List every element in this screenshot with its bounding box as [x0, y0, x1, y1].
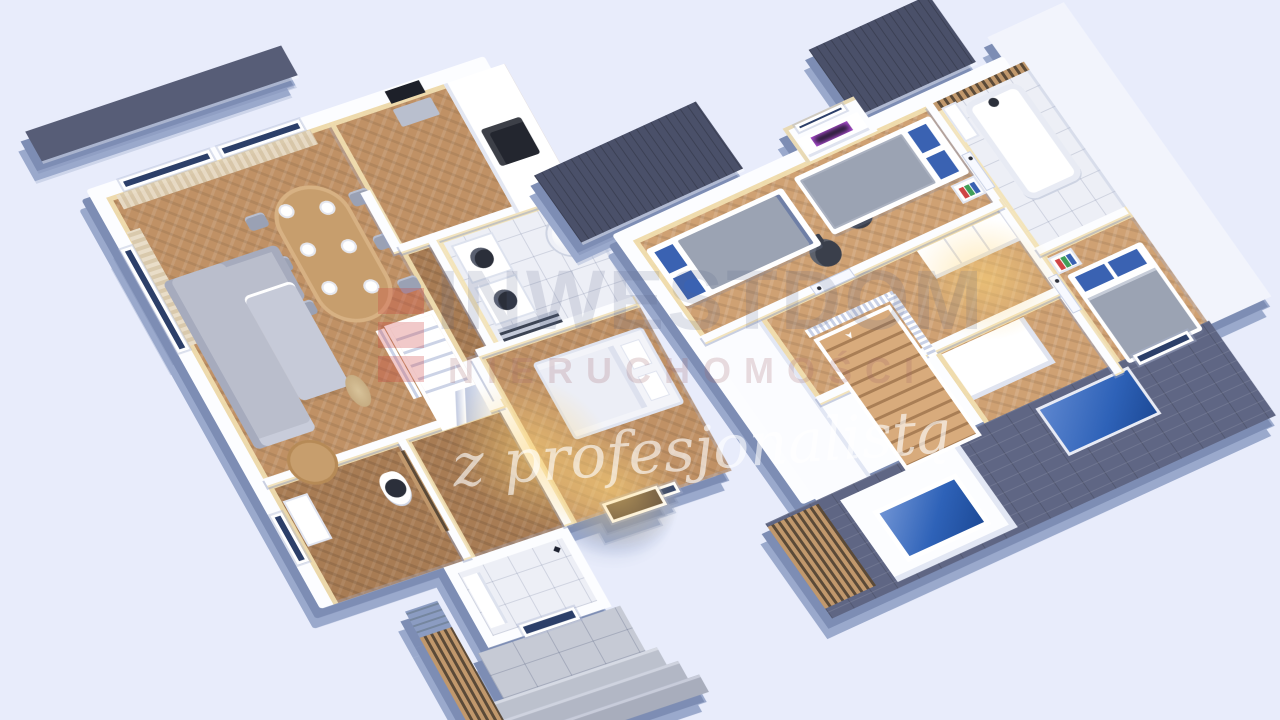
- plate: [319, 279, 341, 297]
- plate: [317, 199, 339, 217]
- plate: [361, 277, 383, 295]
- plate: [297, 241, 319, 259]
- washer-door-icon: [466, 245, 498, 271]
- floorplan-scene: ◆: [0, 0, 1280, 720]
- dryer-door-icon: [490, 287, 522, 313]
- plate: [276, 202, 298, 220]
- toilet-lid: [381, 476, 410, 500]
- plate: [338, 237, 360, 255]
- bed-pillow: [638, 370, 671, 401]
- shower-fixture-icon: [986, 96, 1001, 108]
